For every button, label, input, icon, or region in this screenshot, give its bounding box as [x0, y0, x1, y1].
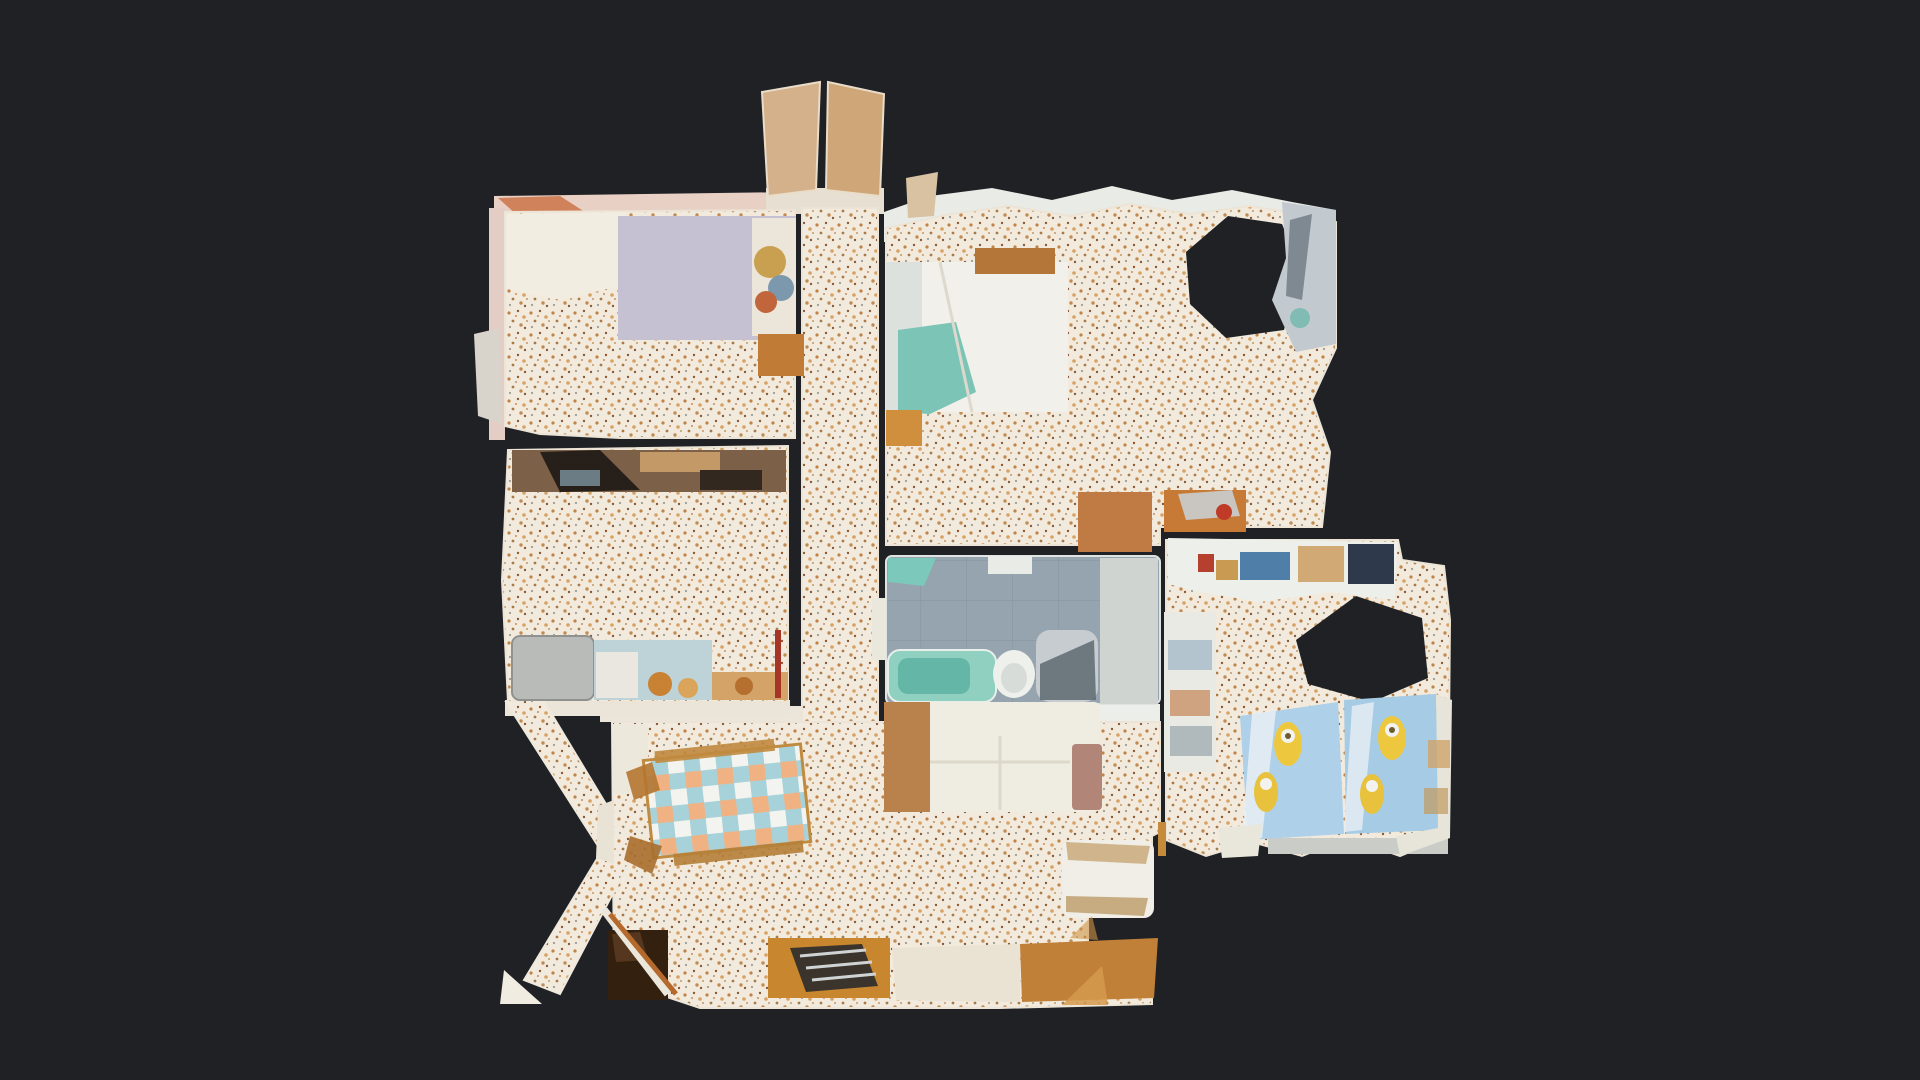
toilet-seat: [1001, 663, 1027, 693]
bed-middle-item-1: [648, 672, 672, 696]
entry-door-right: [826, 82, 884, 196]
bathroom-white-patch: [988, 556, 1032, 574]
minion-figure-1: [1274, 722, 1302, 766]
scan-fragment-bottom-white: [892, 944, 1020, 1002]
entry-door-left: [762, 82, 820, 196]
bedframe-patch-1: [1428, 740, 1450, 768]
wardrobe-clothes-1: [1168, 640, 1212, 670]
minion-pupil-1: [1285, 733, 1291, 739]
wardrobe-clothes-2: [1170, 690, 1210, 716]
cabinet-middle-room: [512, 636, 594, 700]
clothes-pile-3: [755, 291, 777, 313]
bedframe-patch-2: [1424, 788, 1448, 814]
nightstand-bedroom-2: [886, 410, 922, 446]
bed-middle-item-2: [678, 678, 698, 698]
footboard-white: [1218, 824, 1262, 858]
room-hallway-floor[interactable]: [802, 208, 878, 724]
minion-goggle-4: [1366, 780, 1378, 792]
toy-box-navy: [1348, 544, 1394, 584]
minion-figure-3: [1378, 716, 1406, 760]
balcony-scan-stub: [596, 800, 614, 864]
shower-area: [1100, 558, 1158, 704]
bedframe-orange-sliver: [1158, 822, 1166, 856]
bathtub-inner: [898, 658, 970, 694]
wardrobe-mirror-teal: [1290, 308, 1310, 328]
sofa-armrest: [1072, 744, 1102, 810]
desk-bedroom-2: [1078, 492, 1152, 552]
toy-box-red: [1198, 554, 1214, 572]
scan-viewer-canvas[interactable]: [0, 0, 1920, 1080]
nightstand-bedroom-1: [758, 334, 804, 376]
door-leaf-bedroom-2: [906, 172, 938, 218]
toy-box-blue: [1240, 552, 1290, 580]
minion-goggle-2: [1260, 778, 1272, 790]
dresser-bedroom-2: [975, 248, 1055, 274]
bed-middle-room-pillow: [596, 652, 638, 698]
shelf-middle-item: [735, 677, 753, 695]
door-bathroom: [872, 598, 886, 660]
floorplan-3d-scan: [0, 0, 1920, 1080]
wall-fragment-left: [474, 328, 502, 424]
desk-middle-blue-patch: [560, 470, 600, 486]
wardrobe-clothes-3: [1170, 726, 1212, 756]
clothes-pile-1: [754, 246, 786, 278]
desk-middle-black-patch: [700, 470, 762, 490]
minion-pupil-3: [1389, 727, 1395, 733]
sideboard-red-item: [1216, 504, 1232, 520]
sofa-wood-frame: [884, 702, 930, 812]
door-edge-red: [775, 630, 781, 698]
desk-middle-tan-patch: [640, 452, 720, 472]
toy-box-small: [1216, 560, 1238, 580]
toy-box-tan: [1298, 546, 1344, 582]
